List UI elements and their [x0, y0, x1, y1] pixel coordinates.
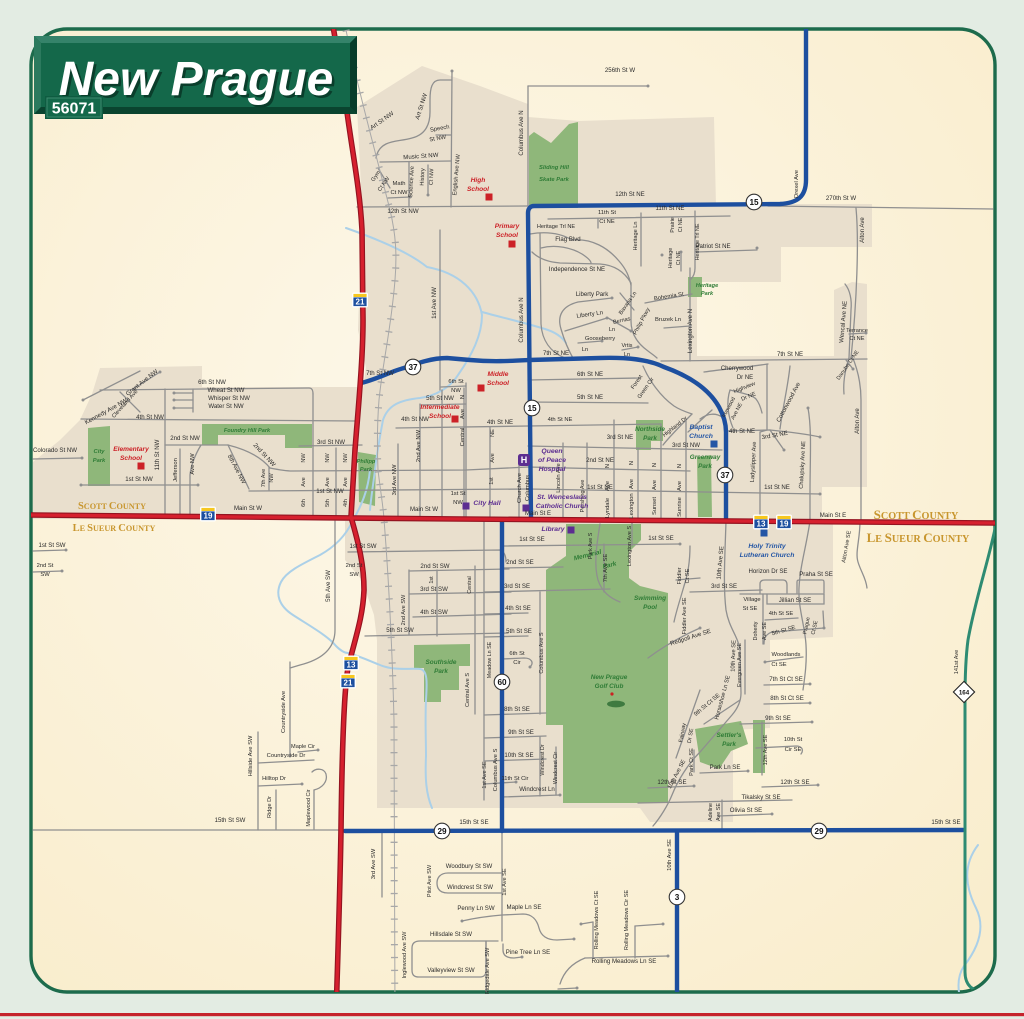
svg-text:Sunset: Sunset [652, 497, 658, 515]
svg-text:5th St NW: 5th St NW [426, 395, 454, 402]
svg-text:Liberty Park: Liberty Park [576, 291, 609, 298]
svg-text:1st St NE: 1st St NE [764, 484, 790, 491]
svg-text:Woodbury St SW: Woodbury St SW [446, 863, 493, 870]
svg-text:15: 15 [749, 198, 759, 207]
svg-text:Maplewood Cir: Maplewood Cir [306, 789, 312, 826]
svg-text:Central: Central [460, 428, 466, 447]
svg-text:Windcrest Cir: Windcrest Cir [553, 752, 559, 785]
svg-text:Main St E: Main St E [820, 512, 846, 519]
svg-text:Intermediate: Intermediate [420, 404, 460, 411]
svg-text:Library: Library [541, 526, 565, 533]
svg-text:Lexington Ave S: Lexington Ave S [627, 526, 633, 567]
svg-text:Pine Tree Ln SE: Pine Tree Ln SE [506, 949, 550, 956]
svg-text:Ct NE: Ct NE [676, 250, 682, 265]
svg-text:Ave SE: Ave SE [762, 622, 768, 640]
svg-text:of Peace: of Peace [538, 457, 566, 464]
svg-text:Park: Park [434, 668, 448, 675]
svg-text:3rd St NW: 3rd St NW [317, 439, 345, 446]
svg-text:1st Ave NW: 1st Ave NW [431, 287, 438, 319]
svg-text:7th St NE: 7th St NE [543, 350, 569, 357]
svg-text:School: School [496, 232, 518, 239]
svg-text:2nd Ave SW: 2nd Ave SW [401, 594, 407, 625]
svg-text:NW: NW [269, 473, 275, 483]
svg-text:5th St NE: 5th St NE [577, 394, 603, 401]
svg-text:5th St SE: 5th St SE [506, 628, 532, 635]
svg-text:Tikalsky St SE: Tikalsky St SE [741, 794, 780, 801]
svg-text:Foundry Hill Park: Foundry Hill Park [224, 428, 271, 434]
svg-text:1st St: 1st St [451, 491, 466, 497]
svg-text:Alton Ave: Alton Ave [854, 408, 861, 434]
svg-text:10th Ave SE: 10th Ave SE [667, 839, 673, 871]
svg-text:N: N [629, 461, 635, 465]
svg-text:5th Ave SW: 5th Ave SW [325, 570, 332, 602]
svg-text:Ave: Ave [652, 480, 658, 490]
svg-text:Golf Club: Golf Club [595, 683, 624, 690]
svg-text:City: City [94, 449, 106, 455]
svg-text:Northside: Northside [635, 426, 665, 433]
svg-text:New Prague: New Prague [591, 674, 628, 681]
svg-text:60: 60 [497, 678, 507, 687]
svg-text:Maple Ln SE: Maple Ln SE [507, 904, 542, 911]
svg-text:Bruzek Ln: Bruzek Ln [655, 317, 681, 323]
svg-text:Southside: Southside [426, 659, 457, 666]
svg-text:3rd St SW: 3rd St SW [420, 586, 448, 593]
svg-text:6th St: 6th St [509, 651, 525, 657]
svg-text:Ct NE: Ct NE [678, 217, 684, 232]
svg-text:City Hall: City Hall [473, 500, 500, 507]
svg-text:LE SUEUR COUNTY: LE SUEUR COUNTY [73, 523, 156, 534]
svg-text:3rd Ave NW: 3rd Ave NW [392, 464, 398, 495]
svg-text:1st St SW: 1st St SW [349, 543, 376, 550]
svg-text:Lyndale: Lyndale [605, 498, 611, 518]
svg-text:7th St Ct SE: 7th St Ct SE [769, 676, 803, 683]
svg-text:4th St SE: 4th St SE [505, 605, 531, 612]
svg-text:13: 13 [347, 660, 356, 669]
svg-text:Rolling Meadows Ct SE: Rolling Meadows Ct SE [594, 890, 600, 949]
svg-text:Sunrise: Sunrise [677, 497, 683, 517]
svg-text:Heritage Ln: Heritage Ln [633, 222, 639, 251]
svg-text:Windcrest St SW: Windcrest St SW [447, 884, 493, 891]
svg-text:3rd St SE: 3rd St SE [711, 583, 737, 590]
svg-text:Hillsdale St SW: Hillsdale St SW [430, 931, 472, 938]
svg-text:Ave: Ave [677, 481, 683, 491]
svg-text:Countryside Dr: Countryside Dr [267, 753, 306, 759]
svg-text:19: 19 [204, 511, 213, 520]
svg-text:Maple Cir: Maple Cir [291, 744, 315, 750]
svg-text:Central: Central [467, 576, 473, 593]
svg-text:N: N [460, 395, 466, 399]
svg-text:Penny Ln SW: Penny Ln SW [457, 905, 495, 912]
svg-text:Woodlands: Woodlands [772, 652, 801, 658]
svg-text:St. Wenceslaus: St. Wenceslaus [537, 494, 587, 501]
svg-text:7th St NW: 7th St NW [366, 370, 394, 377]
svg-text:Terrance: Terrance [846, 328, 868, 334]
svg-text:Pool: Pool [643, 604, 657, 611]
svg-text:Lutheran Church: Lutheran Church [740, 552, 795, 559]
svg-text:Ct NE: Ct NE [850, 336, 865, 342]
svg-text:School: School [120, 455, 142, 462]
svg-text:Main St W: Main St W [234, 505, 262, 512]
svg-text:3rd Ave SW: 3rd Ave SW [371, 848, 377, 879]
svg-text:Rolling Meadows Cir SE: Rolling Meadows Cir SE [624, 890, 630, 951]
svg-text:7th St NE: 7th St NE [777, 351, 803, 358]
svg-text:10th St SE: 10th St SE [504, 752, 533, 759]
svg-text:Ct SE: Ct SE [685, 568, 691, 583]
svg-text:Ct NE: Ct NE [599, 219, 615, 225]
svg-text:Praha St SE: Praha St SE [799, 571, 833, 578]
svg-text:N: N [605, 464, 611, 468]
svg-text:Ln: Ln [609, 327, 615, 333]
svg-text:NW: NW [451, 388, 461, 394]
svg-text:13: 13 [757, 519, 766, 528]
svg-text:Adeline: Adeline [708, 803, 714, 821]
svg-text:4th St NW: 4th St NW [136, 414, 164, 421]
svg-text:Inglewood Ave SW: Inglewood Ave SW [402, 931, 408, 979]
svg-text:SW: SW [40, 572, 50, 578]
svg-text:4th: 4th [343, 499, 349, 507]
svg-text:Valleyview St SW: Valleyview St SW [427, 967, 475, 974]
svg-text:2nd St: 2nd St [346, 563, 363, 569]
svg-text:5th St SW: 5th St SW [386, 627, 414, 634]
svg-text:NW: NW [343, 453, 349, 463]
svg-text:NW: NW [453, 500, 463, 506]
svg-text:Swimming: Swimming [634, 595, 666, 602]
svg-text:Columbus: Columbus [525, 475, 531, 501]
svg-text:Hospital: Hospital [539, 466, 566, 473]
svg-text:21: 21 [356, 297, 365, 306]
svg-text:School: School [429, 413, 451, 420]
svg-text:37: 37 [408, 363, 418, 372]
svg-text:11th St NW: 11th St NW [154, 439, 161, 470]
svg-text:Heritage: Heritage [668, 248, 674, 268]
svg-text:2nd St NW: 2nd St NW [170, 435, 200, 442]
svg-text:Fiddler: Fiddler [677, 567, 683, 584]
svg-text:1st St SE: 1st St SE [519, 536, 544, 543]
svg-text:Holy Trinity: Holy Trinity [748, 543, 786, 550]
svg-text:11th St Cir: 11th St Cir [502, 776, 529, 782]
svg-text:12th Ave SE: 12th Ave SE [763, 734, 769, 765]
svg-text:Park Ct SE: Park Ct SE [689, 748, 695, 776]
svg-text:Cherrywood: Cherrywood [721, 366, 753, 372]
svg-text:Central Ave S: Central Ave S [465, 673, 471, 707]
svg-text:Park: Park [360, 467, 373, 473]
svg-text:Primary: Primary [495, 223, 520, 230]
svg-text:Flag Blvd: Flag Blvd [555, 236, 580, 243]
svg-text:Ave: Ave [605, 481, 611, 491]
svg-text:1st St SW: 1st St SW [38, 542, 65, 549]
svg-text:15th St SE: 15th St SE [931, 819, 960, 826]
svg-text:Horizon Dr SE: Horizon Dr SE [749, 568, 788, 575]
svg-text:Ct NW: Ct NW [390, 190, 408, 196]
svg-text:Windcrest Ln: Windcrest Ln [519, 786, 555, 793]
svg-text:Ave NW: Ave NW [190, 453, 196, 475]
svg-text:Patriot St NE: Patriot St NE [695, 243, 730, 250]
svg-text:1st Ave SE: 1st Ave SE [502, 868, 508, 896]
svg-text:Church: Church [689, 433, 713, 440]
svg-text:Ave: Ave [343, 477, 349, 487]
svg-text:Ln: Ln [582, 347, 588, 353]
svg-text:Hilltop Dr: Hilltop Dr [262, 776, 286, 782]
svg-text:Ave SE: Ave SE [716, 803, 722, 821]
svg-text:Queen: Queen [541, 448, 562, 455]
svg-text:8th St SE: 8th St SE [504, 706, 530, 713]
svg-text:School: School [487, 380, 509, 387]
svg-text:Rolling Meadows Ln SE: Rolling Meadows Ln SE [592, 958, 657, 965]
svg-text:11th St NE: 11th St NE [655, 205, 684, 212]
svg-text:2nd St NE: 2nd St NE [586, 457, 614, 464]
svg-text:Evergreen Ave SE: Evergreen Ave SE [737, 643, 743, 687]
svg-text:Prairie: Prairie [670, 217, 676, 233]
svg-text:Lexington Ave N: Lexington Ave N [687, 309, 694, 353]
svg-text:Elementary: Elementary [113, 446, 149, 453]
svg-text:270th St W: 270th St W [826, 195, 856, 202]
svg-text:Water St NW: Water St NW [208, 403, 244, 410]
svg-text:Cir: Cir [513, 660, 520, 666]
svg-text:7th Ave: 7th Ave [261, 469, 267, 488]
svg-text:Lexington: Lexington [629, 493, 635, 518]
svg-text:Cir SE: Cir SE [785, 747, 802, 753]
svg-text:Alton Ave: Alton Ave [859, 217, 866, 243]
svg-text:Ridgedale Ave SW: Ridgedale Ave SW [485, 947, 491, 994]
svg-text:Ave: Ave [325, 477, 331, 487]
svg-text:Middle: Middle [488, 371, 509, 378]
svg-text:High: High [471, 177, 486, 184]
svg-text:Columbus Ave S: Columbus Ave S [493, 748, 499, 791]
svg-text:Jefferson: Jefferson [173, 458, 179, 482]
svg-text:29: 29 [814, 827, 824, 836]
svg-text:Jillian St SE: Jillian St SE [779, 597, 812, 604]
svg-text:Vrtis: Vrtis [622, 343, 633, 349]
svg-text:Sliding Hill: Sliding Hill [539, 165, 569, 171]
svg-text:SCOTT COUNTY: SCOTT COUNTY [78, 501, 146, 512]
svg-text:2nd St: 2nd St [37, 563, 54, 569]
svg-text:Settler's: Settler's [717, 732, 742, 739]
svg-text:Ave: Ave [629, 479, 635, 489]
svg-text:Park Ln SE: Park Ln SE [710, 764, 741, 771]
svg-text:29: 29 [437, 827, 447, 836]
svg-text:Countryside Ave: Countryside Ave [281, 691, 287, 733]
svg-text:Columbus Ave S: Columbus Ave S [539, 632, 545, 674]
svg-text:1st St NW: 1st St NW [316, 488, 344, 495]
svg-text:9th St SE: 9th St SE [508, 729, 534, 736]
svg-text:3rd St NW: 3rd St NW [672, 442, 700, 449]
svg-text:21: 21 [344, 678, 353, 687]
svg-text:Hillside Ave SW: Hillside Ave SW [248, 735, 254, 776]
svg-text:19: 19 [780, 519, 789, 528]
svg-text:6th: 6th [301, 499, 307, 507]
svg-text:Philipp: Philipp [357, 459, 376, 465]
svg-text:1st: 1st [489, 477, 495, 485]
svg-text:SW: SW [349, 572, 359, 578]
svg-text:Baptist: Baptist [689, 424, 713, 431]
svg-text:1st Ave SE: 1st Ave SE [482, 761, 488, 789]
svg-text:10th St: 10th St [784, 737, 803, 743]
svg-text:NE: NE [490, 429, 496, 437]
svg-text:15th St SE: 15th St SE [459, 819, 488, 826]
svg-text:H: H [521, 455, 528, 465]
svg-text:Park Ave S: Park Ave S [588, 532, 594, 559]
svg-text:1st: 1st [429, 576, 435, 584]
svg-text:4th St NE: 4th St NE [729, 428, 755, 435]
svg-text:8th St Ct SE: 8th St Ct SE [770, 695, 804, 702]
svg-text:3rd St NE: 3rd St NE [607, 434, 633, 441]
svg-text:4th St SE: 4th St SE [769, 611, 794, 617]
svg-text:Colorado St NW: Colorado St NW [33, 447, 77, 454]
svg-text:5th: 5th [325, 499, 331, 507]
svg-text:Ct SE: Ct SE [771, 662, 786, 668]
svg-text:NW: NW [325, 453, 331, 463]
svg-text:12th St NE: 12th St NE [615, 191, 644, 198]
svg-text:9th St SE: 9th St SE [765, 715, 791, 722]
svg-text:12th St SE: 12th St SE [780, 779, 809, 786]
svg-text:1st St NW: 1st St NW [125, 476, 153, 483]
svg-text:11th St: 11th St [598, 210, 616, 216]
svg-text:Math: Math [393, 181, 406, 187]
svg-text:Park: Park [722, 741, 736, 748]
svg-text:Main St W: Main St W [410, 506, 438, 513]
svg-text:Windcrest Dr: Windcrest Dr [540, 744, 546, 775]
svg-text:Skate Park: Skate Park [539, 177, 569, 183]
svg-text:56071: 56071 [52, 101, 97, 118]
svg-text:15th St SW: 15th St SW [215, 817, 246, 824]
svg-text:Park: Park [93, 458, 106, 464]
svg-text:Ln: Ln [624, 352, 630, 358]
svg-text:N: N [677, 464, 683, 468]
svg-text:6th St NE: 6th St NE [577, 371, 603, 378]
svg-text:Greenway: Greenway [690, 454, 721, 461]
svg-text:Columbus Ave N: Columbus Ave N [518, 297, 525, 342]
svg-text:Heritage Trl NE: Heritage Trl NE [695, 223, 701, 260]
svg-text:Park: Park [701, 291, 714, 297]
svg-text:Pilot Ave SW: Pilot Ave SW [427, 864, 433, 897]
svg-text:School: School [467, 186, 489, 193]
svg-text:Ct NW: Ct NW [429, 168, 436, 185]
svg-text:Main St E: Main St E [525, 511, 551, 517]
svg-text:256th St W: 256th St W [605, 67, 635, 74]
svg-text:Independence St NE: Independence St NE [549, 266, 605, 273]
svg-text:141st Ave: 141st Ave [954, 650, 960, 674]
svg-text:Ave: Ave [460, 409, 466, 419]
svg-text:Village: Village [743, 597, 760, 603]
svg-text:6th St: 6th St [448, 379, 464, 385]
svg-text:4th St NW: 4th St NW [401, 416, 429, 423]
svg-text:Wheat St NW: Wheat St NW [208, 387, 245, 394]
svg-text:4th St SW: 4th St SW [420, 609, 448, 616]
svg-text:N: N [652, 463, 658, 467]
svg-text:Fiddler Ave SE: Fiddler Ave SE [682, 597, 688, 634]
svg-text:Dr NE: Dr NE [737, 375, 753, 381]
svg-text:Park: Park [643, 435, 657, 442]
svg-text:History: History [420, 168, 427, 186]
svg-text:Ridge Dr: Ridge Dr [267, 796, 273, 818]
svg-text:1st St SE: 1st St SE [648, 535, 673, 542]
svg-text:4th St NE: 4th St NE [548, 417, 573, 423]
svg-text:2nd St SW: 2nd St SW [420, 563, 449, 570]
svg-text:Columbus Ave N: Columbus Ave N [518, 110, 525, 155]
svg-text:37: 37 [720, 471, 730, 480]
svg-text:15: 15 [527, 404, 537, 413]
svg-text:Ave: Ave [490, 453, 496, 463]
svg-text:3rd St SE: 3rd St SE [504, 583, 530, 590]
svg-text:Church Ave: Church Ave [517, 473, 523, 503]
svg-text:3: 3 [675, 893, 680, 902]
svg-text:Whisper St NW: Whisper St NW [208, 395, 250, 402]
svg-text:164: 164 [959, 690, 970, 697]
svg-text:2nd St SE: 2nd St SE [506, 559, 533, 566]
svg-text:Drexel Ave: Drexel Ave [794, 170, 800, 198]
svg-text:Doherty: Doherty [753, 621, 759, 640]
svg-text:St SE: St SE [743, 606, 758, 612]
svg-text:Gooseberry: Gooseberry [585, 336, 615, 342]
svg-text:NW: NW [301, 453, 307, 463]
svg-text:2nd Ave NW: 2nd Ave NW [416, 429, 422, 462]
svg-text:7th Ave SE: 7th Ave SE [603, 554, 609, 583]
svg-text:Catholic Church: Catholic Church [536, 503, 589, 510]
svg-text:6th St NW: 6th St NW [198, 379, 226, 386]
svg-text:12th St NW: 12th St NW [387, 208, 418, 215]
svg-text:Heritage: Heritage [696, 283, 718, 289]
svg-text:Meadow Ln SE: Meadow Ln SE [487, 641, 493, 678]
svg-text:12th St SE: 12th St SE [657, 779, 686, 786]
svg-text:Olivia St SE: Olivia St SE [730, 807, 763, 814]
svg-text:Ave: Ave [301, 477, 307, 487]
svg-text:Park: Park [698, 463, 712, 470]
svg-text:4th St NE: 4th St NE [487, 419, 513, 426]
svg-text:Heritage Trl NE: Heritage Trl NE [537, 224, 576, 230]
